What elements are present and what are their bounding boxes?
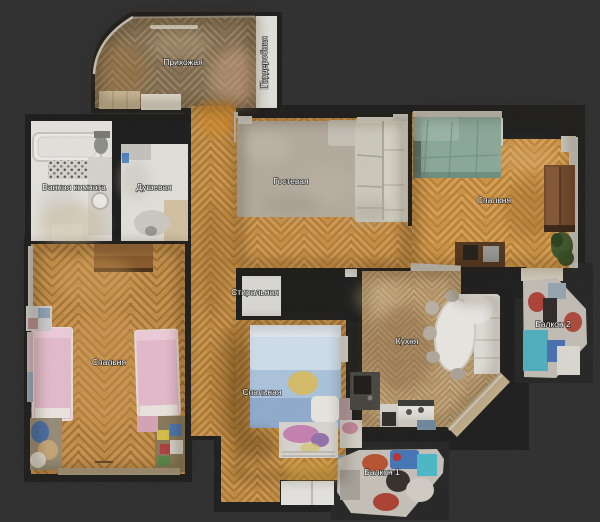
svg-text:Кухня: Кухня <box>396 336 419 346</box>
svg-text:Душевая: Душевая <box>136 182 172 192</box>
svg-text:Гостевая: Гостевая <box>273 176 309 186</box>
svg-text:Балкон 2: Балкон 2 <box>535 319 571 329</box>
svg-text:Спальня: Спальня <box>92 357 127 367</box>
svg-text:Спальня: Спальня <box>477 195 512 205</box>
svg-text:Стиральная: Стиральная <box>231 287 279 297</box>
svg-text:Спальная: Спальная <box>243 387 282 397</box>
svg-text:Ванная комната: Ванная комната <box>42 182 106 192</box>
svg-text:Балкон 1: Балкон 1 <box>364 467 400 477</box>
svg-text:Прихожая: Прихожая <box>163 57 203 67</box>
